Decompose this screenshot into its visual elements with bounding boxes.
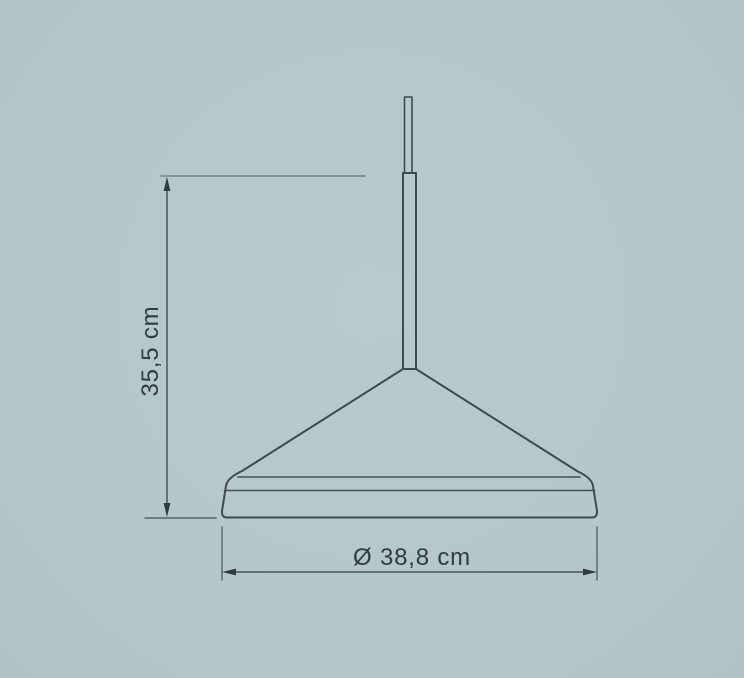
technical-drawing-canvas: 35,5 cm Ø 38,8 cm — [0, 0, 744, 678]
lamp-stem — [403, 173, 416, 369]
lamp-shade-silhouette — [222, 369, 597, 518]
diameter-arrow-left-icon — [222, 569, 236, 576]
diameter-dimension-label: Ø 38,8 cm — [353, 544, 471, 571]
diameter-dimension: Ø 38,8 cm — [222, 527, 597, 580]
height-dimension-label: 35,5 cm — [137, 306, 164, 397]
suspension-cable — [405, 97, 413, 173]
height-arrow-down-icon — [164, 503, 171, 517]
height-dimension: 35,5 cm — [137, 176, 365, 518]
lamp-outline — [222, 97, 597, 518]
diameter-arrow-right-icon — [583, 569, 597, 576]
height-arrow-up-icon — [164, 177, 171, 191]
pendant-lamp-diagram: 35,5 cm Ø 38,8 cm — [0, 0, 744, 678]
